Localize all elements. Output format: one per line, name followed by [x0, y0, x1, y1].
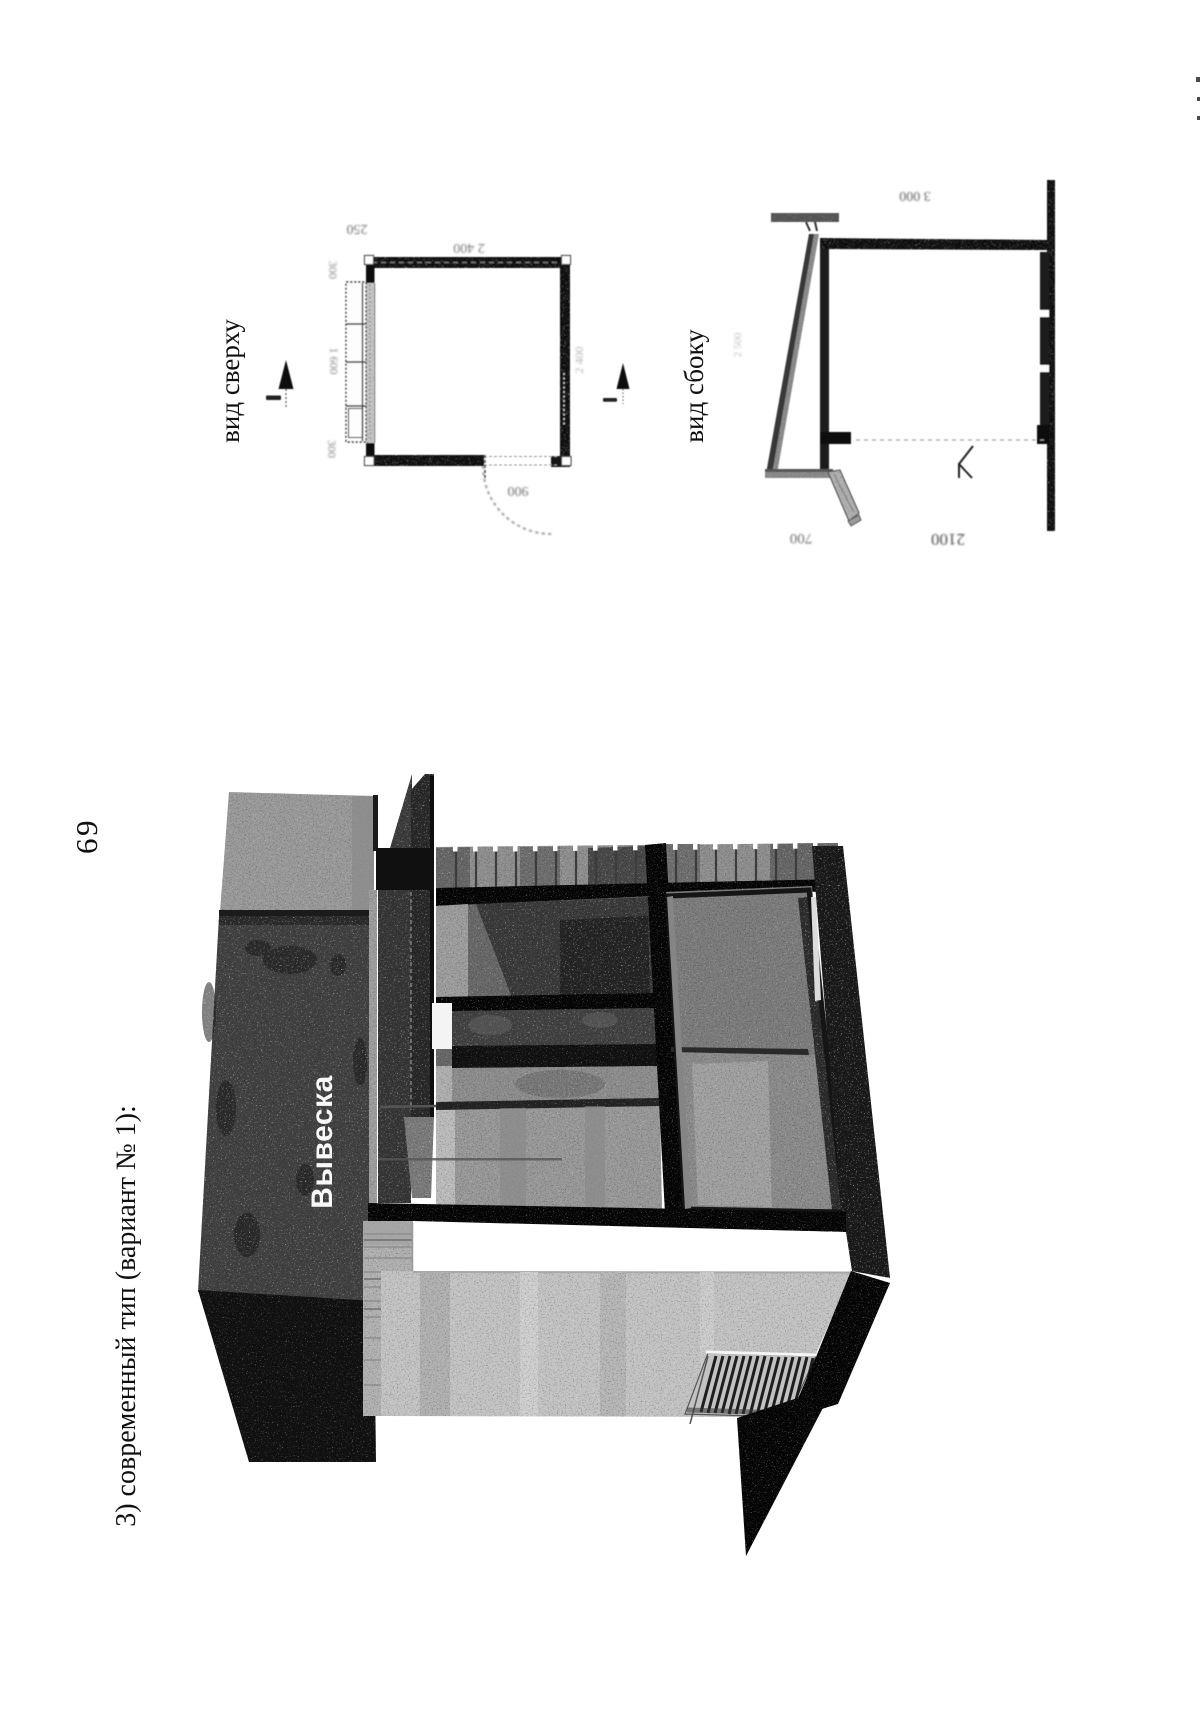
svg-text:2 500: 2 500: [732, 332, 744, 357]
svg-text:900: 900: [508, 483, 529, 498]
svg-text:2 400: 2 400: [572, 347, 586, 374]
svg-text:3 000: 3 000: [899, 188, 931, 203]
svg-text:300: 300: [325, 440, 339, 458]
svg-text:вид сверху: вид сверху: [215, 319, 245, 443]
svg-text:250: 250: [347, 221, 368, 236]
svg-text:1 600: 1 600: [327, 348, 341, 375]
svg-text:Вывеска: Вывеска: [306, 1075, 339, 1209]
svg-text:вид сбоку: вид сбоку: [679, 329, 709, 443]
svg-text:300: 300: [326, 261, 340, 279]
svg-text:2 400: 2 400: [453, 240, 485, 255]
svg-text:3) современный тип (вариант №: 3) современный тип (вариант № 1):: [111, 1105, 142, 1527]
svg-text:2100: 2100: [931, 530, 965, 549]
svg-text:700: 700: [790, 530, 813, 546]
svg-text:69: 69: [69, 818, 104, 854]
